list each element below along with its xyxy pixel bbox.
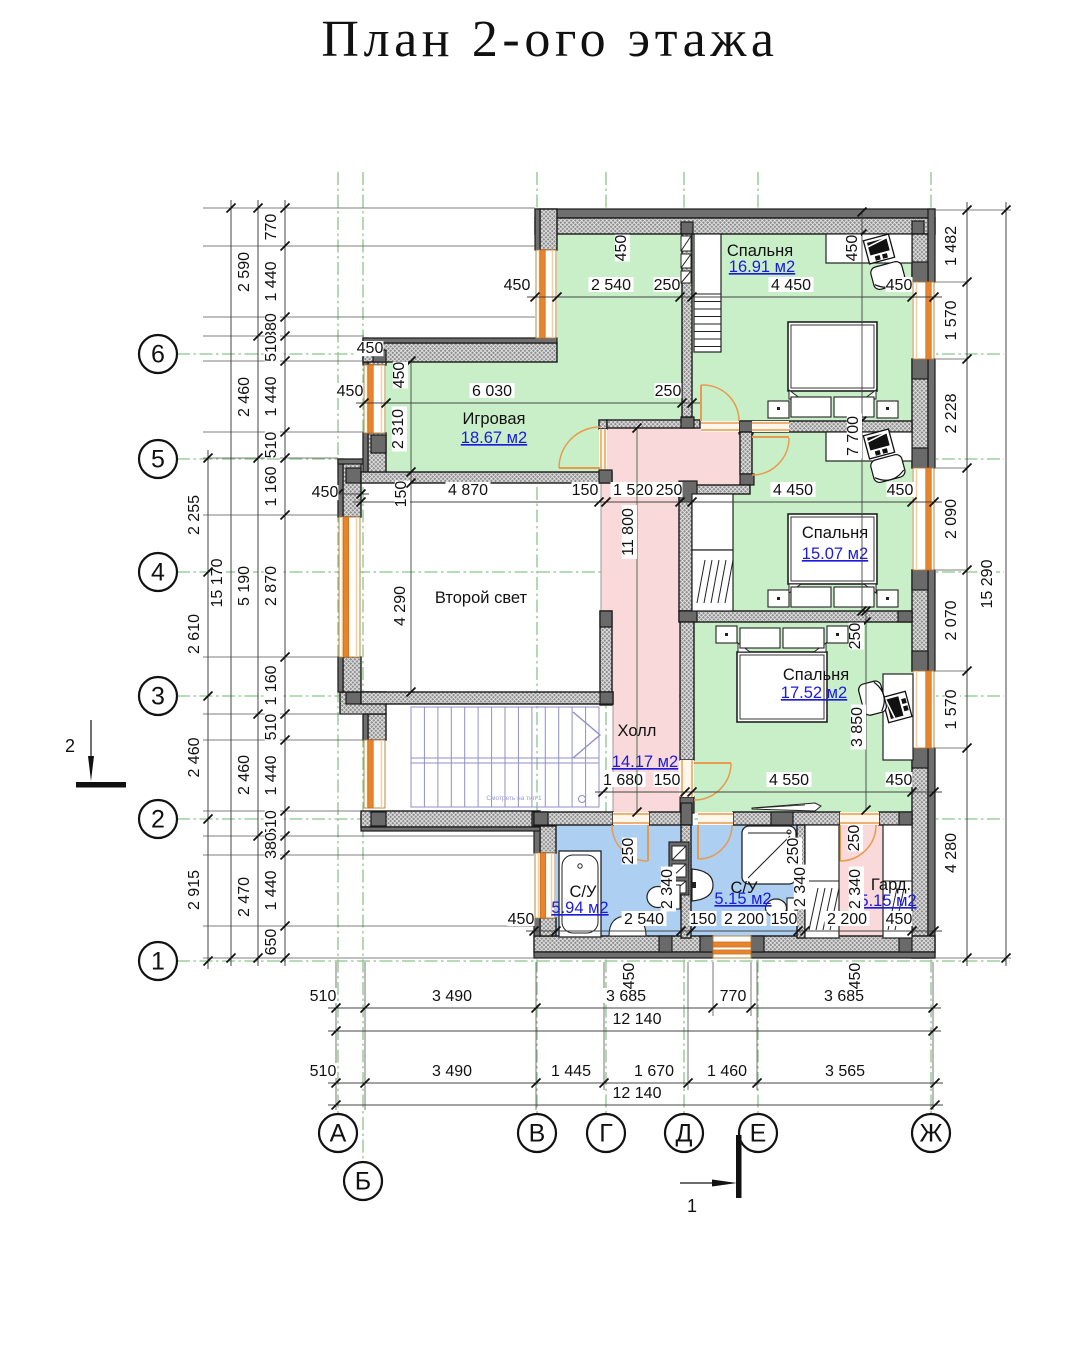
svg-text:1 160: 1 160 xyxy=(263,665,280,705)
svg-text:450: 450 xyxy=(508,911,535,928)
svg-text:2 460: 2 460 xyxy=(236,755,253,795)
svg-text:510: 510 xyxy=(263,335,280,362)
svg-text:450: 450 xyxy=(613,235,630,262)
svg-text:450: 450 xyxy=(337,383,364,400)
svg-text:450: 450 xyxy=(357,340,384,357)
svg-text:3 685: 3 685 xyxy=(606,988,646,1005)
svg-text:510: 510 xyxy=(263,714,280,741)
svg-text:1 445: 1 445 xyxy=(551,1063,591,1080)
svg-text:1 570: 1 570 xyxy=(943,689,960,729)
svg-text:План 2-ого этажа: План 2-ого этажа xyxy=(321,11,778,68)
svg-text:2 340: 2 340 xyxy=(847,869,864,909)
svg-text:1 460: 1 460 xyxy=(707,1063,747,1080)
svg-text:В: В xyxy=(529,1120,546,1148)
svg-text:2 470: 2 470 xyxy=(236,877,253,917)
svg-text:5.94 м2: 5.94 м2 xyxy=(551,899,608,917)
svg-text:2 200: 2 200 xyxy=(827,911,867,928)
svg-text:380: 380 xyxy=(263,832,280,859)
svg-text:3 490: 3 490 xyxy=(432,988,472,1005)
svg-text:6 030: 6 030 xyxy=(472,383,512,400)
svg-text:4 870: 4 870 xyxy=(448,482,488,499)
svg-text:450: 450 xyxy=(886,277,913,294)
svg-text:5.15 м2: 5.15 м2 xyxy=(714,890,771,908)
svg-text:2: 2 xyxy=(65,736,75,756)
svg-text:18.67 м2: 18.67 м2 xyxy=(461,429,527,447)
svg-text:4 550: 4 550 xyxy=(769,772,809,789)
svg-text:250: 250 xyxy=(785,838,802,865)
svg-text:3: 3 xyxy=(151,683,165,711)
svg-text:450: 450 xyxy=(504,277,531,294)
svg-text:450: 450 xyxy=(886,911,913,928)
svg-text:4 290: 4 290 xyxy=(392,586,409,626)
svg-text:2 590: 2 590 xyxy=(236,252,253,292)
svg-text:А: А xyxy=(330,1120,347,1148)
svg-text:2 460: 2 460 xyxy=(236,377,253,417)
svg-text:510: 510 xyxy=(263,432,280,459)
svg-text:1 440: 1 440 xyxy=(263,261,280,301)
svg-text:Ж: Ж xyxy=(919,1120,942,1148)
svg-text:2: 2 xyxy=(151,806,165,834)
svg-text:250: 250 xyxy=(654,277,681,294)
svg-text:5.15 м2: 5.15 м2 xyxy=(859,892,916,910)
svg-text:3 685: 3 685 xyxy=(824,988,864,1005)
svg-text:1 160: 1 160 xyxy=(263,466,280,506)
svg-text:2 255: 2 255 xyxy=(186,495,203,535)
svg-text:11 800: 11 800 xyxy=(620,508,637,556)
svg-text:150: 150 xyxy=(393,481,410,508)
svg-text:15 290: 15 290 xyxy=(979,559,996,608)
svg-text:2 228: 2 228 xyxy=(943,393,960,433)
svg-text:17.52 м2: 17.52 м2 xyxy=(781,684,847,702)
svg-text:150: 150 xyxy=(572,482,599,499)
svg-text:450: 450 xyxy=(391,362,408,389)
svg-text:250: 250 xyxy=(846,825,863,852)
svg-text:250: 250 xyxy=(620,838,637,865)
svg-text:1 482: 1 482 xyxy=(943,226,960,266)
svg-text:Е: Е xyxy=(750,1120,767,1148)
svg-text:2 340: 2 340 xyxy=(659,869,676,909)
svg-text:2 070: 2 070 xyxy=(943,600,960,640)
svg-text:4 280: 4 280 xyxy=(943,833,960,873)
svg-text:Г: Г xyxy=(599,1120,613,1148)
svg-text:Д: Д xyxy=(676,1120,693,1148)
svg-text:2 090: 2 090 xyxy=(943,499,960,539)
svg-text:Б: Б xyxy=(355,1168,371,1196)
svg-text:2 460: 2 460 xyxy=(186,737,203,777)
svg-text:650: 650 xyxy=(263,929,280,956)
svg-text:14.17 м2: 14.17 м2 xyxy=(612,753,678,771)
svg-text:Смотреть на тип 1: Смотреть на тип 1 xyxy=(486,795,542,802)
svg-text:Спальня: Спальня xyxy=(802,524,868,542)
svg-text:1: 1 xyxy=(151,948,165,976)
svg-text:150: 150 xyxy=(654,772,681,789)
svg-text:450: 450 xyxy=(844,235,861,262)
svg-text:450: 450 xyxy=(887,482,914,499)
svg-text:Игровая: Игровая xyxy=(463,410,526,428)
svg-text:510: 510 xyxy=(310,1063,337,1080)
svg-text:2 870: 2 870 xyxy=(263,566,280,606)
svg-text:450: 450 xyxy=(886,772,913,789)
svg-text:770: 770 xyxy=(720,988,747,1005)
svg-text:1 440: 1 440 xyxy=(263,870,280,910)
svg-text:2 540: 2 540 xyxy=(591,277,631,294)
svg-text:1 570: 1 570 xyxy=(943,300,960,340)
svg-text:510: 510 xyxy=(310,988,337,1005)
svg-text:1 440: 1 440 xyxy=(263,376,280,416)
svg-text:3 490: 3 490 xyxy=(432,1063,472,1080)
svg-text:Второй свет: Второй свет xyxy=(435,589,528,607)
svg-text:4: 4 xyxy=(151,559,165,587)
svg-text:2 915: 2 915 xyxy=(186,870,203,910)
svg-text:2 540: 2 540 xyxy=(624,911,664,928)
svg-text:5 190: 5 190 xyxy=(236,566,253,606)
svg-text:770: 770 xyxy=(263,214,280,241)
svg-text:3 850: 3 850 xyxy=(849,707,866,747)
svg-text:150: 150 xyxy=(690,911,717,928)
svg-text:150: 150 xyxy=(771,911,798,928)
svg-text:16.91 м2: 16.91 м2 xyxy=(729,258,795,276)
svg-text:2 200: 2 200 xyxy=(724,911,764,928)
svg-text:3 565: 3 565 xyxy=(825,1063,865,1080)
svg-text:4 450: 4 450 xyxy=(773,482,813,499)
svg-text:2 610: 2 610 xyxy=(186,614,203,654)
svg-text:4 450: 4 450 xyxy=(771,277,811,294)
svg-text:1 670: 1 670 xyxy=(634,1063,674,1080)
svg-text:1 440: 1 440 xyxy=(263,755,280,795)
svg-text:1: 1 xyxy=(687,1196,697,1216)
svg-text:12 140: 12 140 xyxy=(613,1085,662,1102)
svg-text:2 310: 2 310 xyxy=(390,409,407,449)
svg-text:450: 450 xyxy=(847,963,864,990)
svg-text:1 520: 1 520 xyxy=(613,482,653,499)
svg-text:250: 250 xyxy=(655,383,682,400)
svg-text:5: 5 xyxy=(151,446,165,474)
svg-text:250: 250 xyxy=(847,623,864,650)
svg-text:6: 6 xyxy=(151,341,165,369)
svg-text:450: 450 xyxy=(621,963,638,990)
svg-text:2 340: 2 340 xyxy=(792,867,809,907)
svg-text:450: 450 xyxy=(312,484,339,501)
svg-text:15.07 м2: 15.07 м2 xyxy=(802,545,868,563)
svg-text:12 140: 12 140 xyxy=(613,1011,662,1028)
svg-text:15 170: 15 170 xyxy=(209,558,226,607)
svg-text:7 700: 7 700 xyxy=(845,416,862,456)
svg-text:Спальня: Спальня xyxy=(783,666,849,684)
svg-text:250: 250 xyxy=(656,482,683,499)
